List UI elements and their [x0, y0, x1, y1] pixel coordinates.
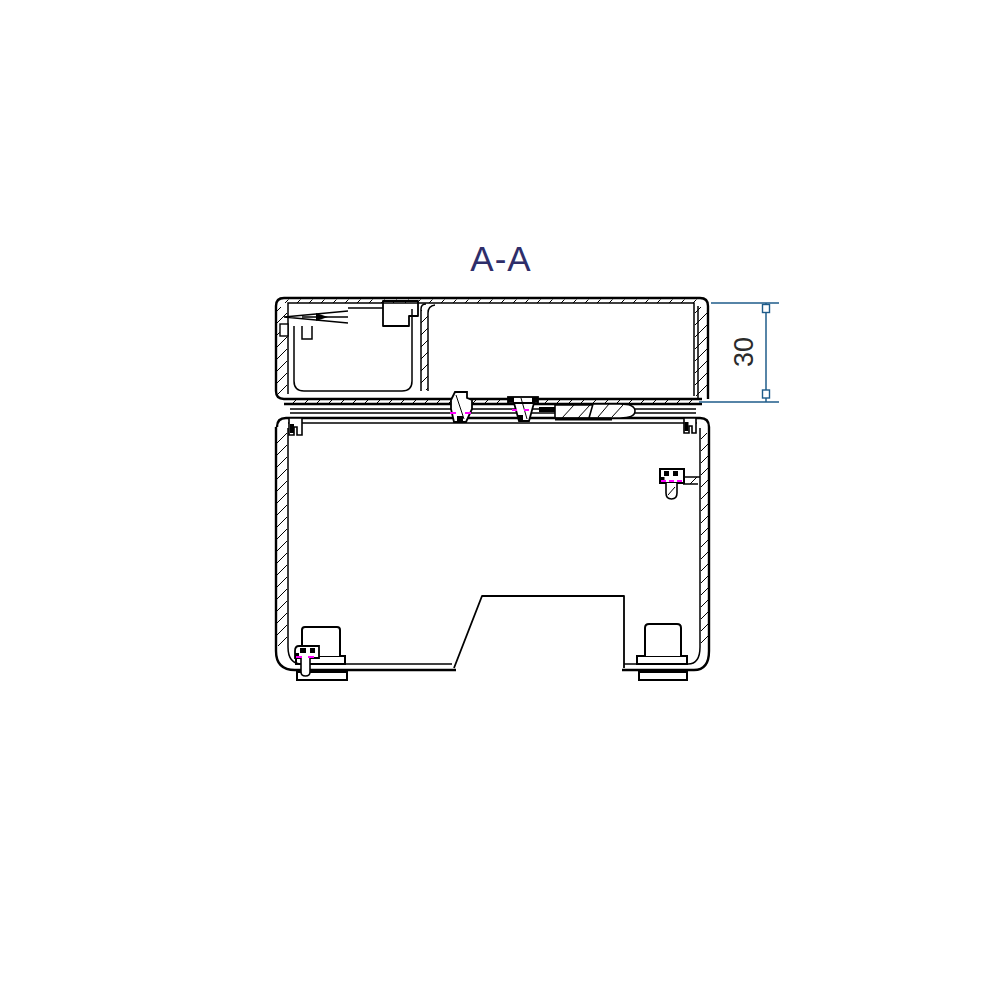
bottom-recess [454, 596, 624, 668]
section-drawing: A-A [0, 0, 1000, 1000]
cover-compartment [294, 309, 412, 391]
latch-left [450, 392, 472, 422]
right-foot-lower-pad [639, 672, 687, 680]
dimension-tick-bottom [763, 390, 770, 398]
left-foot-pin [301, 657, 310, 676]
section-title: A-A [470, 239, 531, 278]
right-foot-pad [637, 656, 687, 664]
left-foot [295, 627, 340, 676]
dimension-annotation: 30 [699, 303, 779, 402]
cover-bottom-line-1 [276, 391, 702, 399]
dimension-tick-top [763, 305, 770, 313]
rim-hook-right [684, 418, 696, 433]
wall-hook [660, 469, 700, 499]
dimension-value: 30 [729, 337, 759, 367]
right-foot [645, 624, 681, 656]
cover-outer-wall [276, 298, 708, 399]
snap-tongue [280, 311, 348, 339]
rim-hook-left [289, 418, 302, 435]
cover-hatching [277, 300, 707, 397]
joint-band [276, 391, 709, 435]
base-inner-wall [288, 428, 700, 664]
drawing-canvas: A-A [0, 0, 1000, 1000]
cover-inner-wall [288, 303, 698, 398]
base-profile [276, 427, 709, 680]
cover-profile [276, 298, 708, 399]
base-hatching [277, 433, 709, 646]
